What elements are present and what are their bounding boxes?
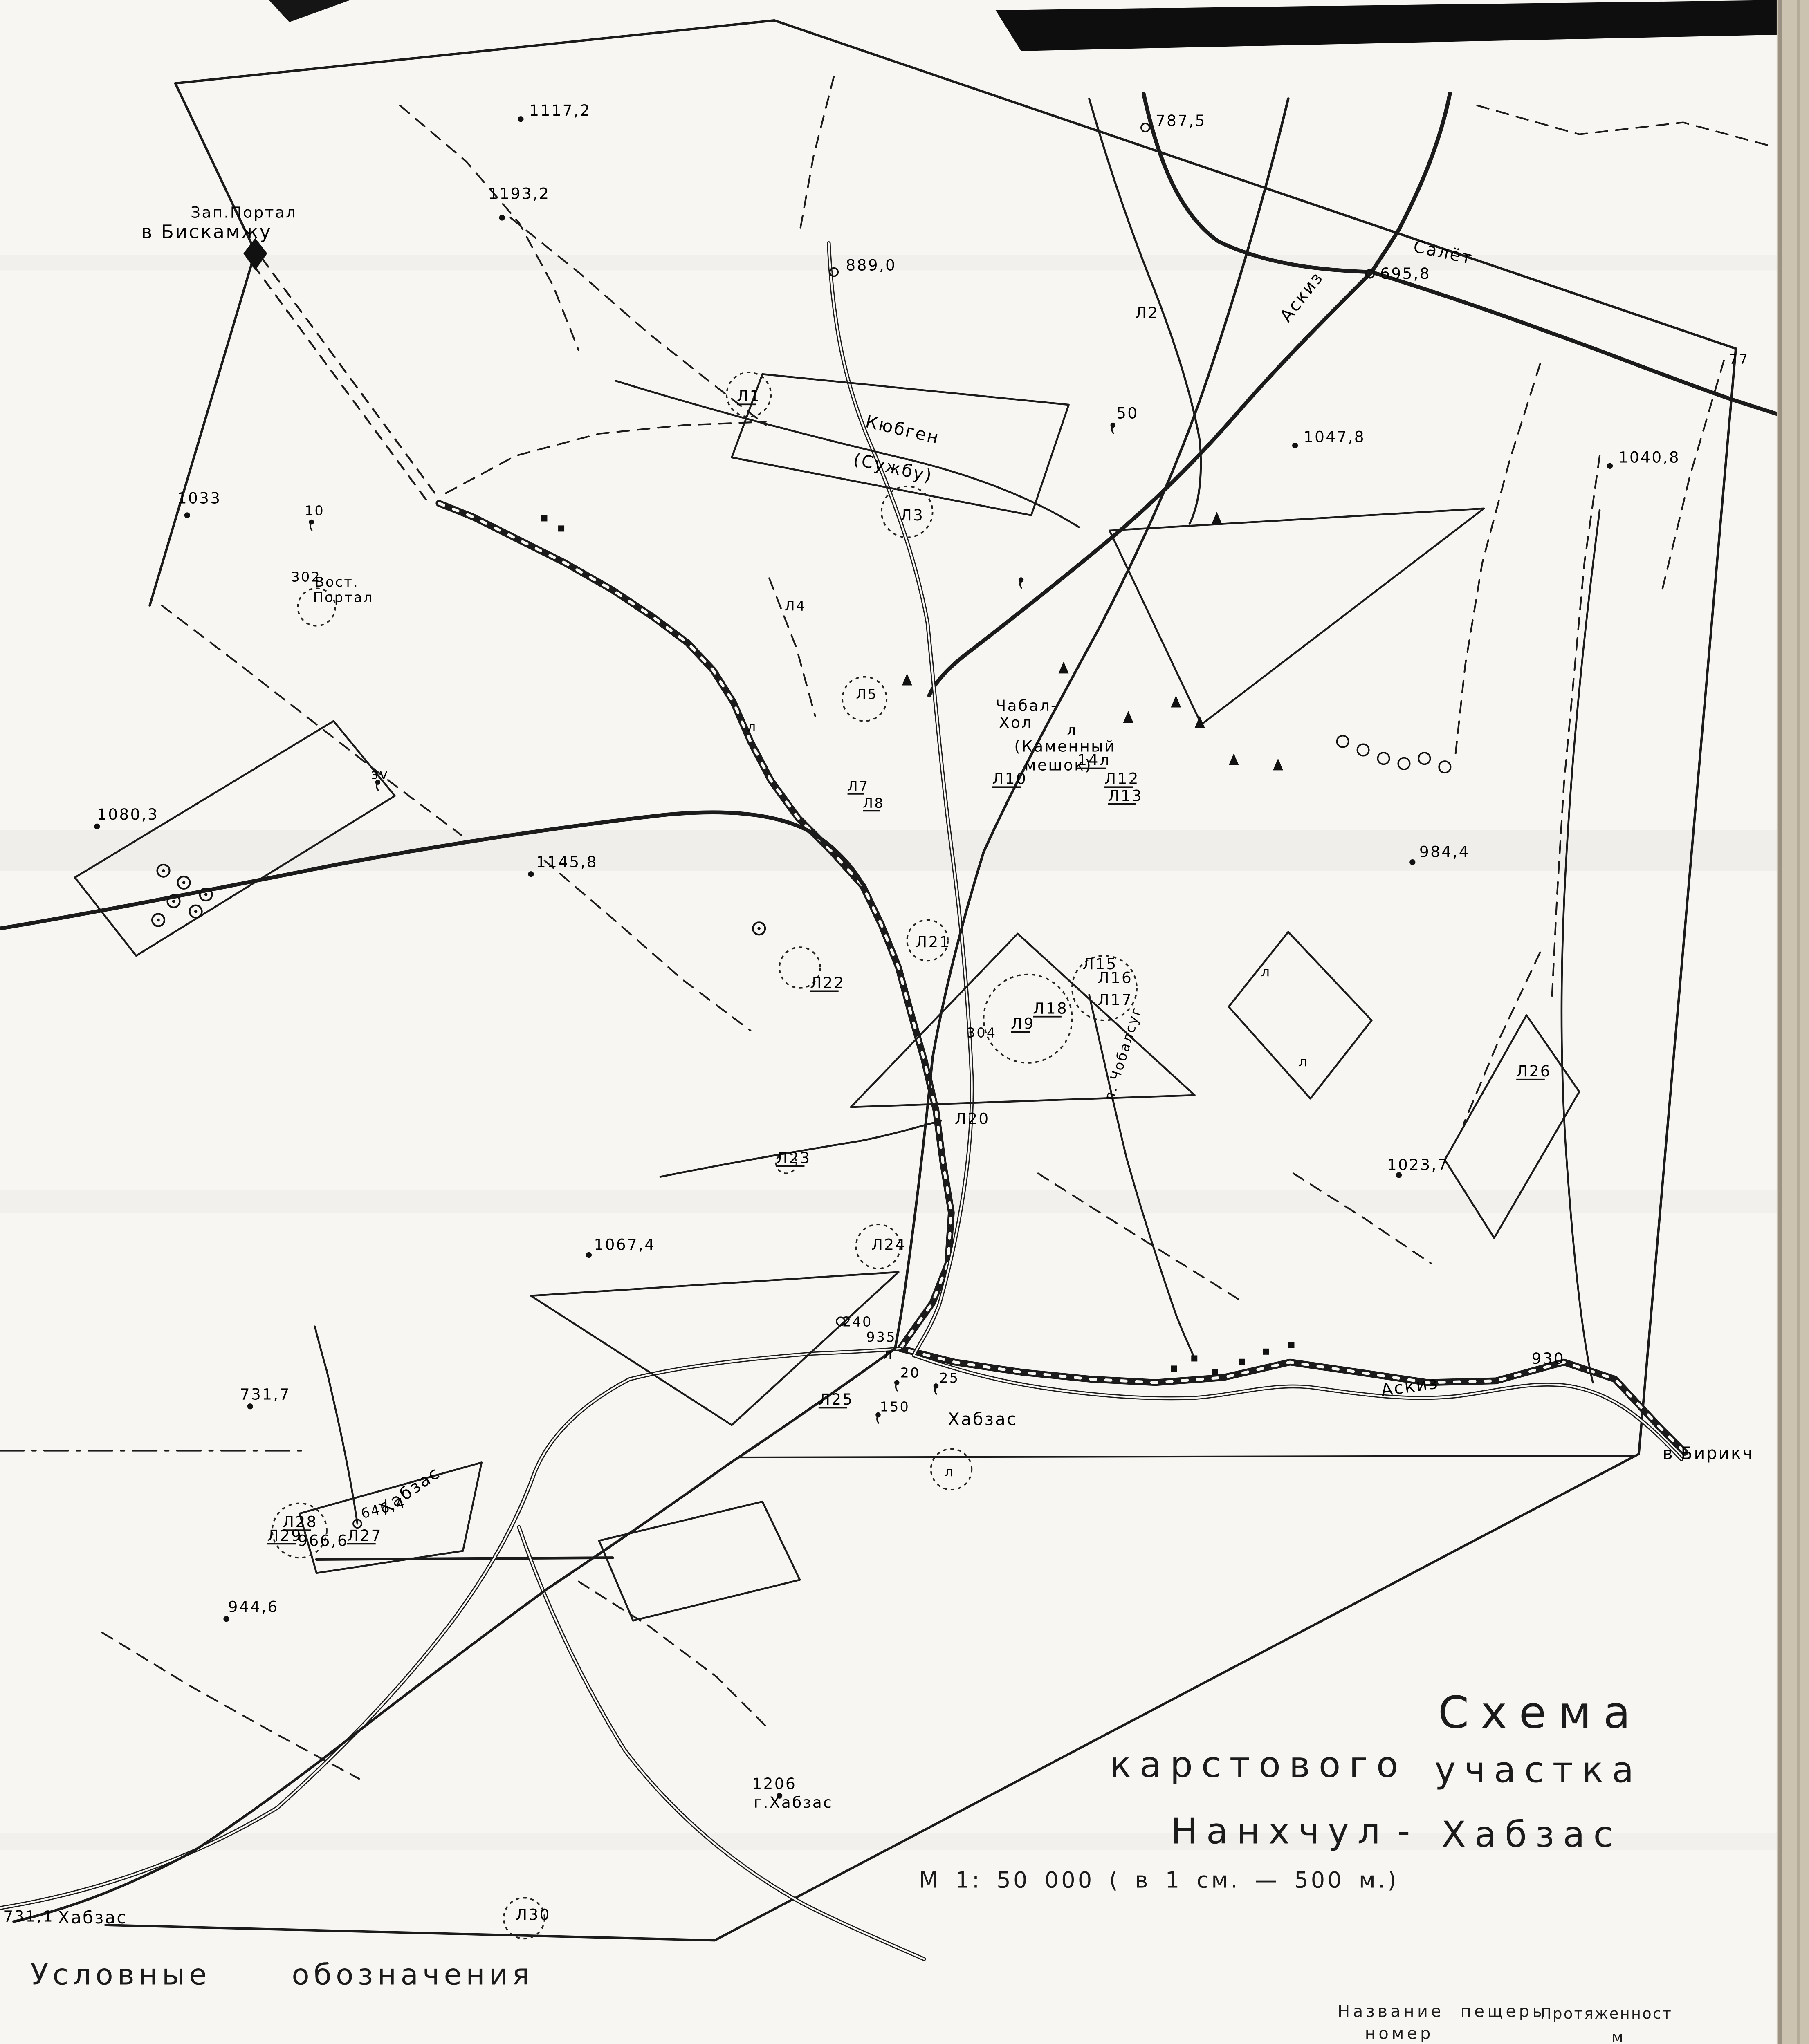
map-label: 1067,4 — [594, 1236, 655, 1254]
elevation-dot — [223, 1616, 229, 1622]
water-level-ring — [1141, 123, 1149, 132]
peak-triangle — [902, 673, 912, 685]
building-square — [558, 525, 564, 531]
building-square — [1239, 1359, 1245, 1365]
map-label: Зап.Портал — [191, 203, 297, 221]
elevation-dot — [1292, 443, 1298, 448]
map-label: 77 — [1729, 351, 1749, 367]
map-label: Хол — [999, 713, 1032, 731]
roads — [13, 99, 1288, 1921]
map-label: зv — [371, 766, 389, 782]
peak-triangle — [1273, 758, 1283, 770]
building-square — [1288, 1342, 1294, 1348]
building-square — [1263, 1349, 1269, 1355]
map-title-karst: карстового — [1109, 1745, 1407, 1786]
karst-sinkhole — [1378, 753, 1389, 764]
dashed-trails — [102, 76, 1772, 1779]
map-label: 787,5 — [1156, 112, 1206, 130]
peak-triangle — [1171, 695, 1181, 707]
map-label: Л12 — [1104, 770, 1140, 788]
map-label: Хабзас — [948, 1409, 1017, 1429]
karst-funnel-dot — [194, 910, 197, 913]
map-label: Л16 — [1098, 968, 1133, 986]
map-label: 1145,8 — [536, 853, 598, 871]
map-label: Хабзас — [375, 1462, 444, 1519]
karst-sinkhole — [1439, 761, 1450, 773]
karst-funnel-dot — [204, 893, 207, 896]
map-label: Л26 — [1516, 1062, 1551, 1080]
elevation-dot — [586, 1252, 592, 1258]
map-scale-note: М 1: 50 000 ( в 1 см. — 500 м.) — [919, 1869, 1398, 1894]
map-label: л — [1261, 964, 1271, 979]
map-label: 1033 — [177, 489, 222, 507]
map-label: 731,1 — [3, 1907, 54, 1925]
map-label: л — [1067, 722, 1077, 738]
map-label: 25 — [939, 1370, 959, 1386]
elevation-dot — [247, 1403, 253, 1409]
map-label: л — [945, 1464, 955, 1479]
elevation-dot — [184, 512, 190, 518]
map-label: Портал — [313, 589, 374, 605]
map-label: Л1 — [737, 387, 761, 405]
map-label: 1117,2 — [529, 101, 591, 119]
map-label: Л9 — [1011, 1015, 1035, 1033]
map-label: Л23 — [776, 1149, 811, 1167]
elevation-dot — [1607, 463, 1613, 469]
map-label: Л25 — [819, 1390, 854, 1408]
karst-funnel-dot — [162, 869, 165, 872]
map-symbols — [94, 116, 1613, 1939]
map-label: 695,8 — [1380, 264, 1431, 282]
map-label: Л30 — [516, 1906, 551, 1924]
map-label: 50 — [1116, 404, 1138, 422]
karst-funnel-dot — [757, 927, 760, 930]
map-label: 240 — [842, 1314, 873, 1330]
map-label: 966,6 — [298, 1531, 348, 1549]
map-label: л — [1298, 1053, 1308, 1069]
map-label: Аскиз — [1276, 267, 1327, 325]
map-label: 1080,3 — [97, 805, 159, 823]
map-label: Л18 — [1033, 999, 1068, 1017]
map-label: г.Хабзас — [754, 1793, 833, 1811]
map-label: (Сужбу) — [852, 449, 935, 486]
peak-triangle — [1212, 512, 1222, 524]
building-square — [541, 515, 547, 521]
elevation-dot — [94, 824, 100, 829]
map-title-dash: - — [1397, 1811, 1418, 1852]
map-label: 1023,7 — [1387, 1156, 1449, 1174]
map-label: 889,0 — [846, 256, 896, 274]
map-label: Л7 — [848, 778, 869, 794]
map-label: 1040,8 — [1618, 448, 1680, 466]
building-square — [1212, 1369, 1218, 1375]
map-label: л. Чобалсуг — [1101, 1004, 1145, 1103]
karst-sinkhole — [1357, 744, 1369, 755]
karst-sinkhole — [1398, 758, 1409, 769]
map-label: Л22 — [810, 974, 845, 992]
map-title-khabzas: Хабзас — [1441, 1815, 1621, 1856]
map-label: 20 — [900, 1365, 920, 1381]
karst-sinkhole — [1418, 753, 1430, 764]
map-label: Кюбген — [864, 411, 942, 448]
hydrosystem-areas — [75, 374, 1579, 1620]
map-label: 1193,2 — [488, 185, 550, 203]
railway-tunnel — [254, 258, 437, 503]
elevation-dot — [518, 116, 523, 122]
karst-funnel-dot — [172, 900, 175, 903]
map-labels: в БискамжуЗап.Портал1117,21193,2889,0787… — [3, 101, 1754, 1927]
scanned-map-page: в БискамжуЗап.Портал1117,21193,2889,0787… — [0, 0, 1809, 2044]
map-label: 944,6 — [228, 1598, 279, 1616]
building-square — [1171, 1365, 1177, 1372]
peak-triangle — [1229, 753, 1239, 765]
map-label: 731,7 — [240, 1385, 291, 1403]
map-label: Вост. — [315, 574, 359, 590]
map-label: Л2 — [1135, 304, 1159, 322]
map-title-line1: Схема — [1438, 1689, 1643, 1740]
cave-table-header-length: Протяженност — [1540, 2007, 1672, 2024]
map-label: 1206 — [752, 1775, 797, 1793]
map-label: 150 — [880, 1399, 910, 1415]
map-label: Л4 — [785, 598, 806, 614]
map-boundary — [0, 20, 1736, 1941]
peak-triangle — [1123, 711, 1133, 723]
railroad — [439, 503, 1685, 1452]
map-label: Чабал- — [996, 697, 1058, 715]
building-square — [1191, 1355, 1197, 1361]
map-label: Л17 — [1098, 991, 1133, 1009]
karst-funnel-dot — [157, 919, 159, 921]
rivers — [0, 94, 1780, 1959]
map-title-nanchul: Нанхчул — [1171, 1811, 1389, 1852]
map-label: Л10 — [992, 770, 1027, 788]
map-label: Л27 — [347, 1526, 382, 1544]
map-label: Л20 — [955, 1110, 990, 1128]
peak-triangle — [1059, 661, 1069, 673]
map-label: л — [747, 719, 757, 735]
legend-header: Условные обозначения — [31, 1959, 534, 1993]
map-label: 14л — [1077, 751, 1111, 769]
map-label: 930 — [1532, 1349, 1565, 1367]
elevation-dot — [528, 871, 534, 877]
cave-table-header-name: Название пещеры — [1338, 2003, 1548, 2022]
cave-table-header-number: номер — [1365, 2025, 1434, 2044]
map-sheet: в БискамжуЗап.Портал1117,21193,2889,0787… — [0, 0, 1809, 2044]
map-label: 984,4 — [1419, 843, 1470, 861]
map-label: Л24 — [871, 1236, 907, 1254]
elevation-dot — [499, 215, 505, 220]
cave-table-header-unit: м — [1611, 2031, 1626, 2044]
map-label: Л29 — [267, 1526, 302, 1544]
map-title-uchastka: участка — [1434, 1750, 1642, 1791]
map-label: 304 — [967, 1025, 997, 1041]
map-label: Л13 — [1108, 787, 1143, 805]
map-label: 1047,8 — [1304, 428, 1365, 446]
elevation-dot — [1409, 859, 1415, 865]
map-label: в Бискамжу — [141, 221, 272, 242]
karst-funnel-dot — [182, 881, 185, 884]
karst-sinkhole — [1337, 736, 1349, 747]
map-label: в Бирикч — [1663, 1443, 1754, 1463]
map-label: л — [883, 1346, 893, 1362]
map-label: Л3 — [900, 506, 925, 524]
map-label: Хабзас — [58, 1907, 128, 1927]
map-label: 935 — [866, 1329, 896, 1345]
map-label: Л5 — [856, 686, 878, 702]
map-label: Л8 — [863, 795, 884, 811]
map-label: 10 — [305, 502, 325, 518]
map-label: Л21 — [916, 933, 951, 951]
